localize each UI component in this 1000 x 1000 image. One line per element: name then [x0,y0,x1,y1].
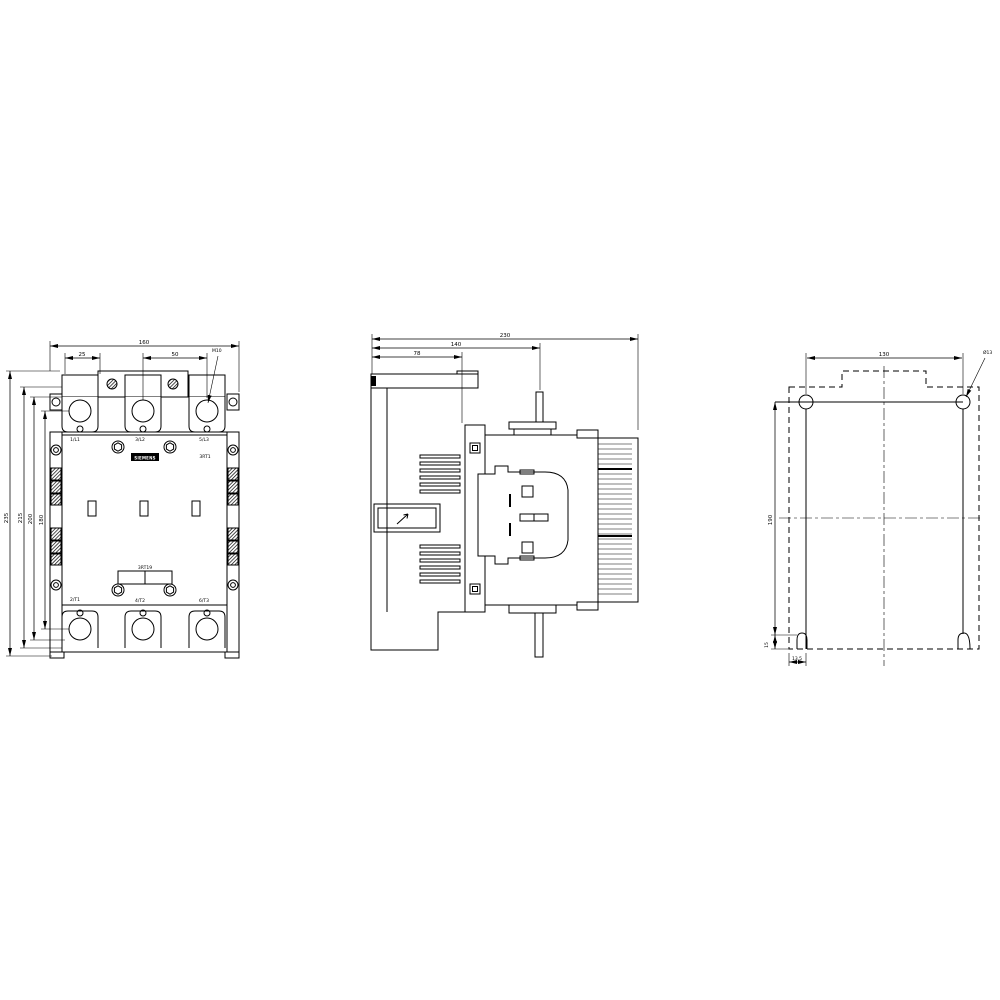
terminal-label: 6/T3 [199,598,209,604]
terminal-label: 4/T2 [135,598,145,604]
dim-back-depth: 78 [414,351,421,357]
drilling-view: 130 Ø13 190 15 13,5 [764,349,992,666]
arrow-icon [397,514,408,524]
bottom-stud [535,613,543,657]
dim-depth-total: 230 [500,333,511,339]
contact-carrier-profile [478,466,568,564]
vent-slats-bottom [420,545,460,583]
dim-front-pitch: 50 [172,352,179,358]
dim-front-hole-centers: 180 [39,514,45,525]
mounting-features [775,395,970,649]
contactor-dimension-drawing: 1/L1 3/L2 5/L3 SIEMENS 3RT1 3RT19 2/T1 4… [0,0,1000,1000]
callout-terminal-hole: M10 [212,348,222,354]
dim-hole-spacing-v: 190 [768,514,774,525]
dim-depth-to-stud: 140 [451,342,462,348]
dim-front-height-3: 200 [28,513,34,524]
side-view: 230 140 78 [371,333,638,657]
cover-screw-icon [168,379,178,389]
dim-slot-offset: 13,5 [792,656,802,662]
centerlines [779,366,982,666]
cover-screw-icon [107,379,117,389]
top-stud [536,392,543,422]
mounting-slot [958,633,970,649]
accessory-code: 3RT19 [138,565,152,571]
terminal-label: 5/L3 [199,437,209,443]
terminal-label: 2/T1 [70,597,80,603]
callout-hole-diameter: Ø13 [983,349,992,356]
terminal-label: 3/L2 [135,437,145,443]
front-bottom-terminals [50,610,239,658]
dim-hole-spacing-h: 130 [879,352,890,358]
dim-front-height-outer: 235 [4,512,10,523]
front-view: 1/L1 3/L2 5/L3 SIEMENS 3RT1 3RT19 2/T1 4… [4,340,239,658]
dim-front-lug: 25 [79,352,86,358]
technical-drawing-page: 1/L1 3/L2 5/L3 SIEMENS 3RT1 3RT19 2/T1 4… [0,0,1000,1000]
front-top-terminals [50,371,239,432]
dim-foot-height: 15 [764,642,770,648]
dim-front-width: 160 [139,340,150,346]
product-code: 3RT1 [199,454,210,460]
brand-label: SIEMENS [134,456,155,461]
dim-front-height-2: 215 [18,512,24,523]
terminal-label: 1/L1 [70,437,80,443]
front-body: 1/L1 3/L2 5/L3 SIEMENS 3RT1 3RT19 2/T1 4… [62,435,227,605]
vent-slats-top [420,455,460,493]
